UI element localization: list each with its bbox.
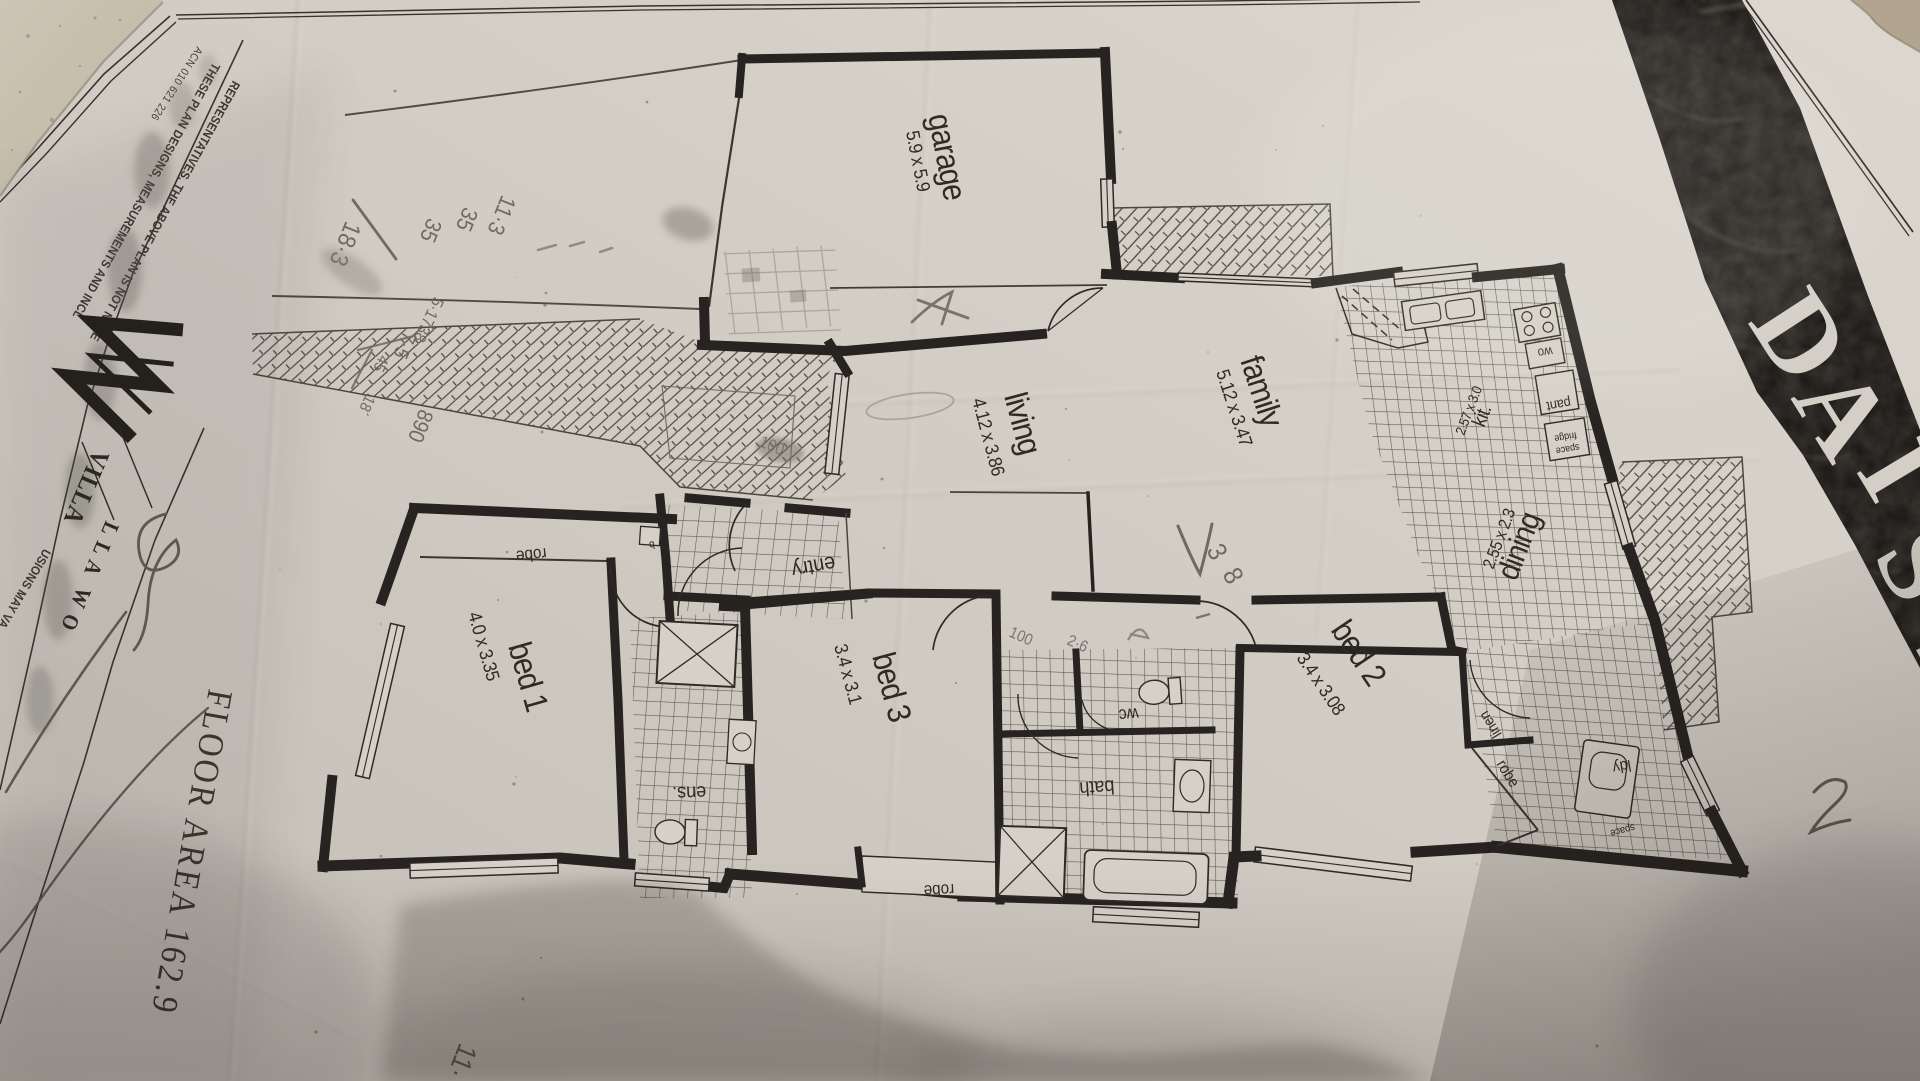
svg-text:ens.: ens.: [672, 781, 707, 804]
svg-text:robe: robe: [515, 544, 547, 566]
svg-text:bath: bath: [1079, 775, 1115, 799]
svg-text:wc: wc: [1118, 704, 1141, 726]
